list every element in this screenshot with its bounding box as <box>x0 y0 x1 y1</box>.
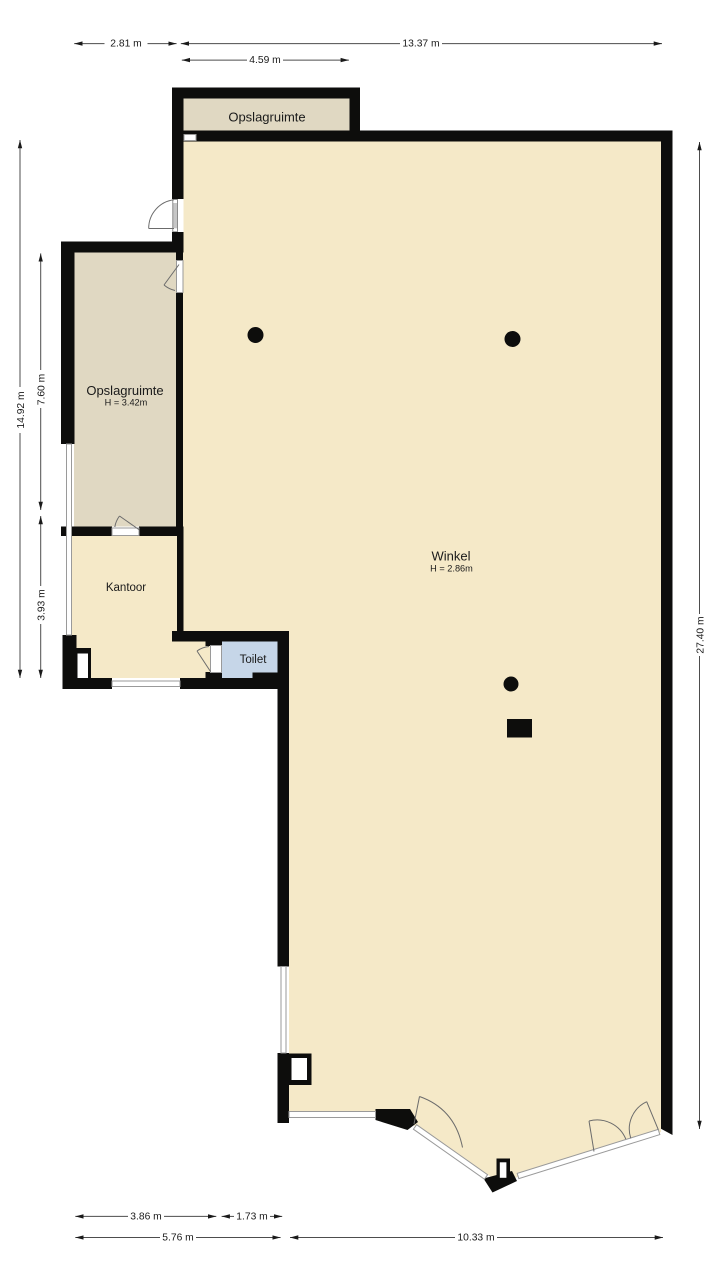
svg-text:1.73 m: 1.73 m <box>236 1211 267 1222</box>
svg-text:14.92 m: 14.92 m <box>16 391 27 428</box>
svg-text:3.86 m: 3.86 m <box>130 1211 161 1222</box>
svg-text:3.93 m: 3.93 m <box>37 589 48 620</box>
svg-text:5.76 m: 5.76 m <box>162 1232 193 1243</box>
svg-text:2.81 m: 2.81 m <box>110 39 141 50</box>
svg-text:Opslagruimte: Opslagruimte <box>86 383 163 398</box>
svg-text:Winkel: Winkel <box>431 549 470 564</box>
svg-text:4.59 m: 4.59 m <box>249 55 280 66</box>
svg-text:H = 2.86m: H = 2.86m <box>430 563 473 573</box>
svg-text:Kantoor: Kantoor <box>106 582 146 594</box>
svg-text:H = 3.42m: H = 3.42m <box>105 397 148 407</box>
svg-text:Opslagruimte: Opslagruimte <box>228 110 305 125</box>
svg-text:Toilet: Toilet <box>240 654 268 666</box>
svg-text:7.60 m: 7.60 m <box>37 374 48 405</box>
svg-text:27.40 m: 27.40 m <box>696 616 707 653</box>
svg-text:10.33 m: 10.33 m <box>457 1232 494 1243</box>
svg-text:13.37 m: 13.37 m <box>402 39 439 50</box>
